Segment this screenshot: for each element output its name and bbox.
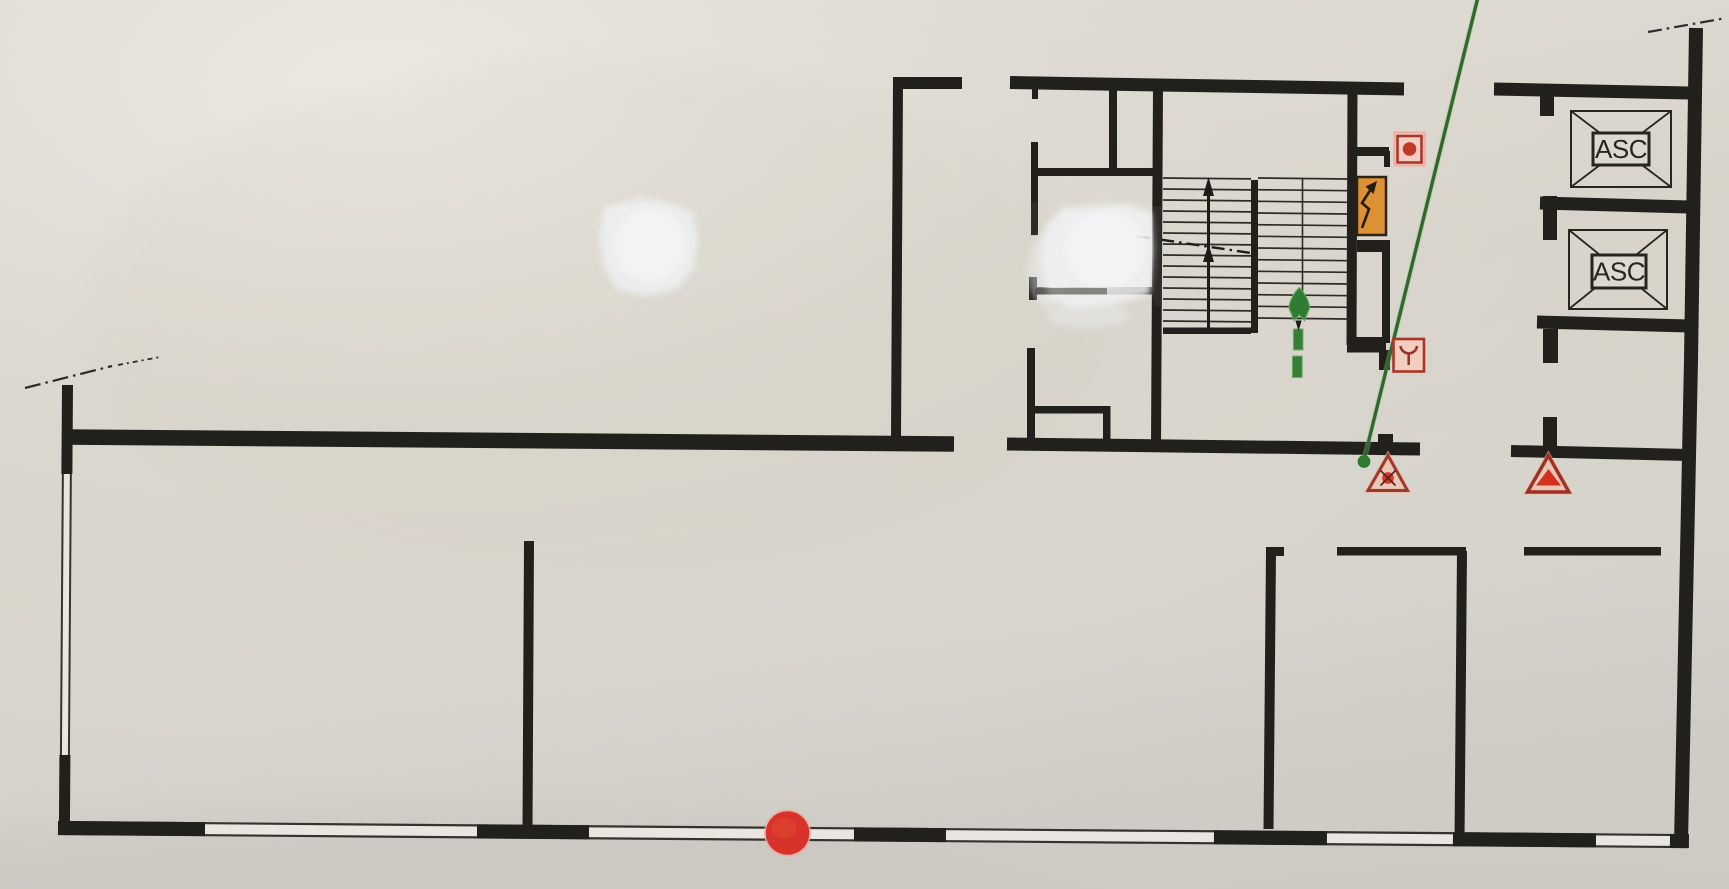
svg-text:ASC: ASC [1595, 134, 1647, 164]
svg-text:ASC: ASC [1593, 257, 1645, 287]
